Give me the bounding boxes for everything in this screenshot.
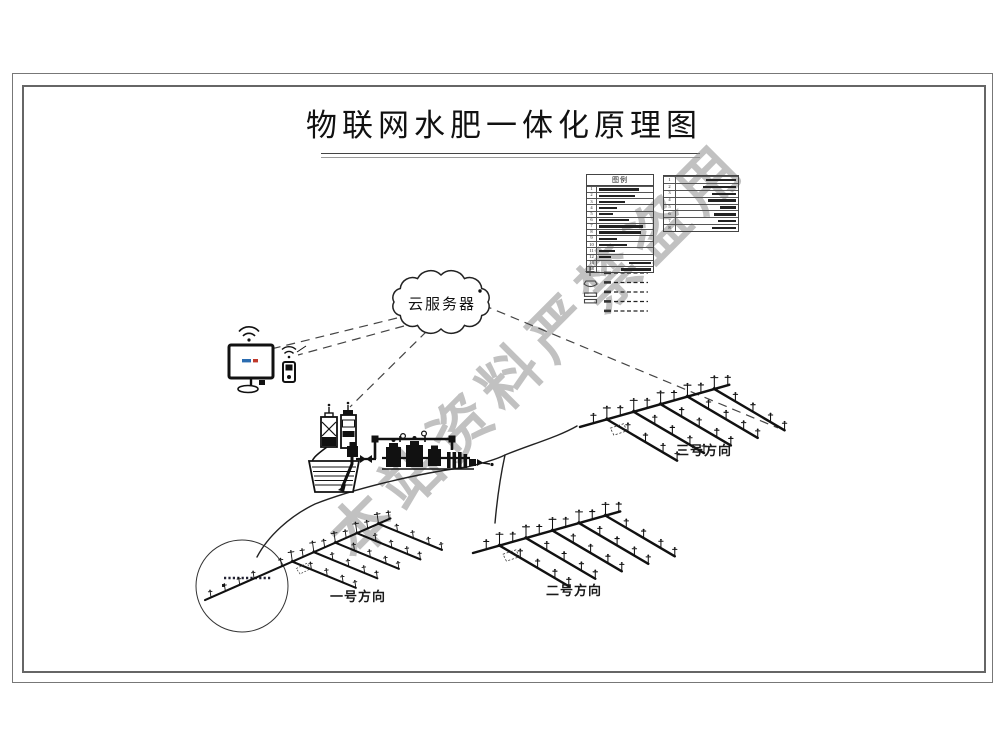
legend-row: 2 bbox=[664, 183, 738, 190]
monitor-icon bbox=[229, 327, 273, 393]
filter-machine bbox=[382, 431, 494, 469]
legend-row: 3 bbox=[664, 190, 738, 197]
legend-table-main: 图例 1234567891011121314 bbox=[586, 174, 654, 273]
mobile-icon bbox=[282, 346, 306, 382]
field-2-label: 二号方向 bbox=[546, 580, 602, 599]
field-grid-1 bbox=[196, 503, 447, 608]
linetype-legend bbox=[584, 267, 648, 312]
schematic-canvas bbox=[0, 0, 1000, 750]
legend-header: 图例 bbox=[587, 175, 653, 186]
legend-row: 8 bbox=[664, 224, 738, 231]
cloud-server-label: 云服务器 bbox=[403, 293, 481, 314]
water-source-basin bbox=[309, 455, 359, 492]
field-1-label: 一号方向 bbox=[330, 586, 386, 605]
detail-callout-circle bbox=[196, 540, 288, 632]
wireless-links bbox=[263, 305, 778, 428]
legend-row: 4 bbox=[664, 197, 738, 204]
legend-table-secondary: 12345678 bbox=[663, 175, 739, 232]
field-grid-2 bbox=[473, 502, 677, 587]
legend-row: 1 bbox=[664, 176, 738, 183]
legend-row: 14 bbox=[587, 266, 653, 272]
legend-row: 7 bbox=[664, 217, 738, 224]
field-3-label: 三号方向 bbox=[676, 440, 732, 459]
legend-row: 5 bbox=[664, 204, 738, 211]
legend-row: 6 bbox=[664, 210, 738, 217]
drawing-sheet: 本站资料严禁盗用 物联网水肥一体化原理图 bbox=[0, 0, 1000, 750]
